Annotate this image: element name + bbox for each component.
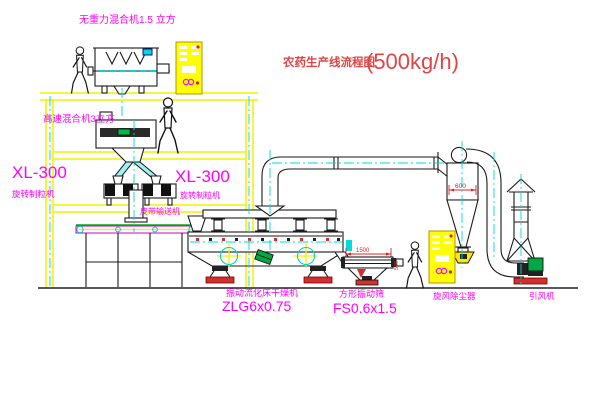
y-chute xyxy=(114,162,158,177)
label-gravity-mixer: 无重力混合机1.5 立方 xyxy=(79,13,176,26)
control-cabinet-top xyxy=(176,42,202,94)
label-fan-name: 引风机 xyxy=(529,291,555,301)
granulator-right xyxy=(142,176,176,205)
label-dryer-model: ZLG6x0.75 xyxy=(222,298,291,314)
dim-cyclone-diameter: 600 xyxy=(455,183,466,190)
label-granulator-left-name: 旋转制粒机 xyxy=(12,189,55,199)
label-belt-conveyor: 皮带输送机 xyxy=(140,206,180,216)
dim-screen-width: 540 xyxy=(394,261,400,270)
induced-draft-fan xyxy=(514,258,547,284)
gravity-mixer xyxy=(88,48,170,94)
worker-figure-ground xyxy=(407,242,424,288)
worker-figure-top xyxy=(72,47,89,93)
belt-conveyor xyxy=(76,225,196,287)
label-granulator-mid-model: XL-300 xyxy=(175,167,230,186)
dryer-foot-right xyxy=(304,266,332,283)
label-granulator-left-model: XL-300 xyxy=(12,163,67,182)
label-granulator-mid-name: 旋转制粒机 xyxy=(180,190,220,200)
page-title: 农药生产线流程图 xyxy=(282,55,375,69)
page-title-capacity: (500kg/h) xyxy=(366,49,459,74)
label-screen-model: FS0.6x1.5 xyxy=(333,300,397,316)
exhaust-duct xyxy=(256,152,448,216)
label-dryer-name: 振动流化床干燥机 xyxy=(226,287,298,298)
flow-diagram-canvas: 无重力混合机1.5 立方 农药生产线流程图 (500kg/h) 高速混合机3立方… xyxy=(0,0,600,403)
flow-diagram-page: 无重力混合机1.5 立方 农药生产线流程图 (500kg/h) 高速混合机3立方… xyxy=(0,0,600,403)
label-high-speed-mixer: 高速混合机3立方 xyxy=(43,113,115,125)
dim-screen-length: 1500 xyxy=(356,248,370,254)
label-screen-name: 方形振动筛 xyxy=(339,288,384,299)
worker-figure-middle xyxy=(158,98,178,153)
dryer-foot-left xyxy=(206,266,234,283)
control-cabinet-bottom xyxy=(429,231,455,283)
dryer-outlet-mark xyxy=(346,240,352,251)
label-cyclone-name: 旋风除尘器 xyxy=(433,291,476,301)
